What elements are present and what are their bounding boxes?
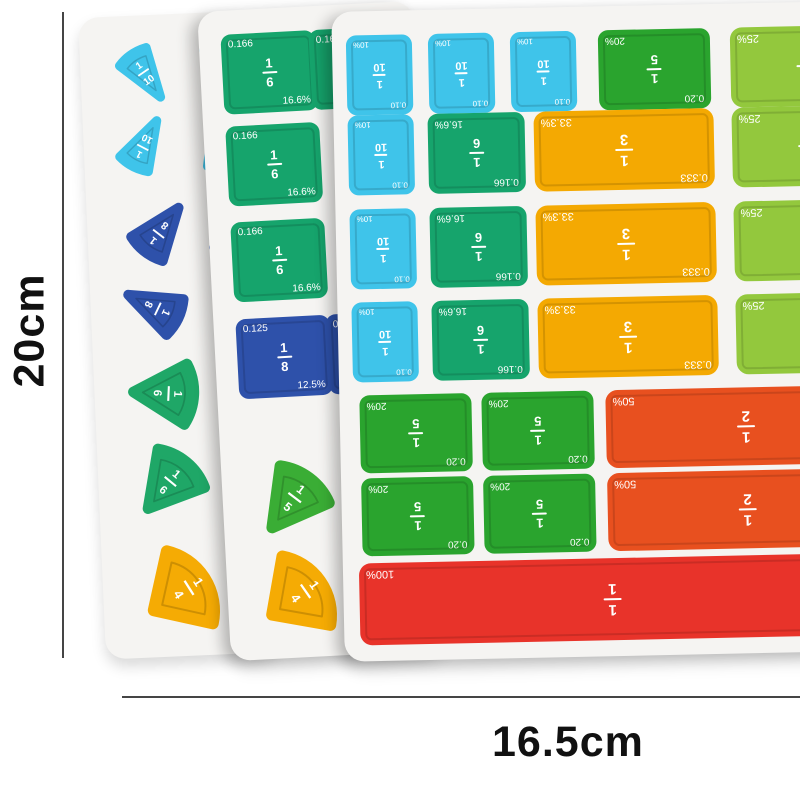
tile-1-2: 12 50% <box>607 467 800 551</box>
percent-label: 20% <box>490 480 510 491</box>
percent-label: 100% <box>366 568 394 581</box>
board-main: 0.10 110 10% 0.10 110 10% 0.10 110 10% 0… <box>331 0 800 662</box>
percent-label: 25% <box>740 206 762 218</box>
percent-label: 10% <box>353 40 369 49</box>
percent-label: 20% <box>605 35 625 46</box>
tile-1-10: 0.10 110 10% <box>428 33 496 114</box>
tile-face: 14 25% <box>733 198 800 281</box>
tile-face: 0.10 110 10% <box>510 31 578 112</box>
tile-face: 0.166 16 16.6% <box>225 122 323 207</box>
percent-label: 20% <box>488 397 508 408</box>
tile-1-4: 14 25% <box>733 198 800 281</box>
percent-label: 25% <box>738 112 760 124</box>
percent-label: 16.6% <box>436 212 465 224</box>
percent-label: 16.6% <box>282 94 311 106</box>
percent-label: 16.6% <box>292 282 321 294</box>
tile-face: 0.166 16 16.6% <box>230 218 328 303</box>
tile-face: 0.166 16 16.6% <box>427 112 526 194</box>
tile-1-1: 11 100% <box>359 553 800 646</box>
tile-face: 0.333 13 33.3% <box>535 202 717 286</box>
percent-label: 12.5% <box>297 379 326 391</box>
width-label: 16.5cm <box>492 718 644 767</box>
percent-label: 33.3% <box>540 116 571 129</box>
tile-face: 0.333 13 33.3% <box>533 108 715 192</box>
percent-label: 16.6% <box>438 305 467 317</box>
tile-face: 0.10 110 10% <box>347 114 415 195</box>
tile-1-6: 0.166 16 16.6% <box>225 122 323 207</box>
percent-label: 20% <box>368 483 388 494</box>
height-label: 20cm <box>6 269 55 393</box>
tile-face: 12 50% <box>607 467 800 551</box>
tile-1-4: 14 25% <box>731 104 800 187</box>
tile-1-6: 0.166 16 16.6% <box>220 30 318 115</box>
percent-label: 20% <box>366 400 386 411</box>
tile-1-4: 14 25% <box>735 291 800 374</box>
percent-label: 33.3% <box>544 303 575 316</box>
tile-face: 0.10 110 10% <box>346 34 414 115</box>
percent-label: 25% <box>737 32 759 44</box>
tile-1-5: 0.20 15 20% <box>483 474 597 554</box>
tile-1-2: 12 50% <box>605 384 800 468</box>
tile-1-8: 0.125 18 12.5% <box>235 315 333 400</box>
tile-face: 0.20 15 20% <box>598 28 712 110</box>
tile-face: 0.20 15 20% <box>359 393 473 473</box>
tile-1-3: 0.333 13 33.3% <box>535 202 717 286</box>
tile-1-5: 0.20 15 20% <box>481 391 595 471</box>
tile-1-10: 0.10 110 10% <box>347 114 415 195</box>
tile-1-3: 0.333 13 33.3% <box>533 108 715 192</box>
percent-label: 10% <box>435 38 451 47</box>
tile-1-6: 0.166 16 16.6% <box>427 112 526 194</box>
tile-face: 0.20 15 20% <box>481 391 595 471</box>
percent-label: 16.6% <box>287 186 316 198</box>
tile-1-6: 0.166 16 16.6% <box>429 206 528 288</box>
tile-face: 14 25% <box>731 104 800 187</box>
product-photo-fraction-tiles: 1 10 1 10 1 10 <box>0 0 800 800</box>
tile-1-10: 0.10 110 10% <box>346 34 414 115</box>
tile-face: 0.166 16 16.6% <box>220 30 318 115</box>
tile-face: 0.125 18 12.5% <box>235 315 333 400</box>
tile-face: 0.10 110 10% <box>428 33 496 114</box>
tile-face: 0.10 110 10% <box>351 301 419 382</box>
svg-text:6: 6 <box>151 390 163 397</box>
fraction-label: 11 <box>359 553 800 646</box>
tile-face: 0.333 13 33.3% <box>537 295 719 379</box>
tile-face: 0.20 15 20% <box>483 474 597 554</box>
percent-label: 10% <box>357 214 373 223</box>
percent-label: 10% <box>355 120 371 129</box>
tile-1-6: 0.166 16 16.6% <box>230 218 328 303</box>
percent-label: 33.3% <box>542 210 573 223</box>
tile-face: 11 100% <box>359 553 800 646</box>
tile-1-5: 0.20 15 20% <box>361 476 475 556</box>
tile-face: 0.10 110 10% <box>349 208 417 289</box>
tile-face: 14 25% <box>730 24 800 107</box>
tile-face: 0.20 15 20% <box>361 476 475 556</box>
tile-face: 0.166 16 16.6% <box>431 299 530 381</box>
tile-1-5: 0.20 15 20% <box>359 393 473 473</box>
percent-label: 10% <box>517 37 533 46</box>
svg-text:1: 1 <box>171 390 183 398</box>
tile-face: 0.166 16 16.6% <box>429 206 528 288</box>
percent-label: 25% <box>742 299 764 311</box>
tile-1-10: 0.10 110 10% <box>510 31 578 112</box>
tile-1-10: 0.10 110 10% <box>351 301 419 382</box>
percent-label: 16.6% <box>435 118 464 130</box>
dimension-line-horizontal <box>122 696 800 698</box>
tile-1-4: 14 25% <box>730 24 800 107</box>
dimension-line-vertical <box>62 12 64 658</box>
tile-face: 14 25% <box>735 291 800 374</box>
percent-label: 50% <box>614 478 636 490</box>
tile-1-5: 0.20 15 20% <box>598 28 712 110</box>
tile-1-10: 0.10 110 10% <box>349 208 417 289</box>
tile-1-6: 0.166 16 16.6% <box>431 299 530 381</box>
percent-label: 50% <box>612 395 634 407</box>
tile-1-3: 0.333 13 33.3% <box>537 295 719 379</box>
percent-label: 10% <box>358 307 374 316</box>
tile-face: 12 50% <box>605 384 800 468</box>
